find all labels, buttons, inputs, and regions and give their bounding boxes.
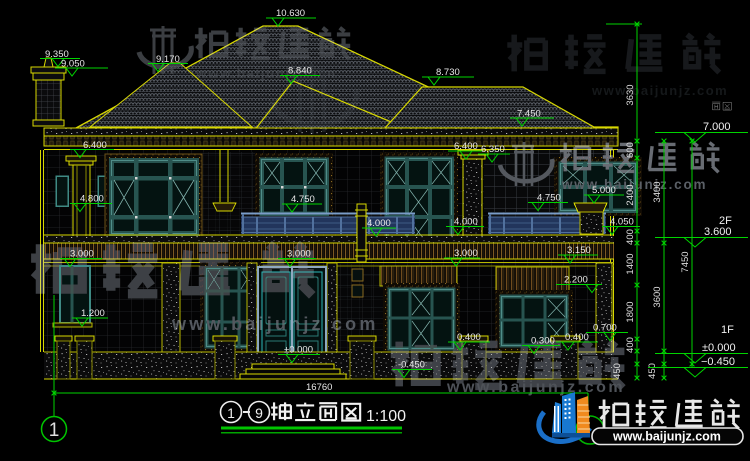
svg-text:4.800: 4.800 — [80, 194, 104, 205]
svg-text:3600: 3600 — [652, 286, 663, 307]
svg-text:-0.450: -0.450 — [398, 360, 425, 371]
svg-text:8.730: 8.730 — [436, 67, 460, 78]
svg-text:1400: 1400 — [625, 253, 636, 274]
svg-text:2400: 2400 — [625, 184, 636, 205]
svg-text:450: 450 — [647, 363, 658, 379]
svg-text:8.840: 8.840 — [288, 66, 312, 77]
svg-text:1F: 1F — [721, 324, 734, 336]
svg-text:3.000: 3.000 — [454, 248, 478, 259]
svg-text:±0.000: ±0.000 — [702, 342, 736, 354]
svg-text:4.750: 4.750 — [291, 194, 315, 205]
svg-text:0.700: 0.700 — [593, 323, 617, 334]
svg-text:www.baijunjz.com: www.baijunjz.com — [612, 430, 721, 444]
svg-text:3.600: 3.600 — [704, 226, 732, 238]
svg-text:4.000: 4.000 — [367, 218, 391, 229]
svg-text:5.000: 5.000 — [592, 185, 616, 196]
svg-text:16760: 16760 — [306, 382, 332, 393]
svg-text:4.000: 4.000 — [454, 217, 478, 228]
svg-text:1.200: 1.200 — [81, 308, 105, 319]
svg-text:2.200: 2.200 — [564, 275, 588, 286]
svg-text:1: 1 — [227, 405, 235, 421]
svg-text:400: 400 — [625, 229, 636, 245]
svg-text:0.400: 0.400 — [565, 332, 589, 343]
svg-text:www.baijunjz.com: www.baijunjz.com — [171, 314, 379, 334]
svg-text:10.630: 10.630 — [276, 8, 305, 19]
svg-text:3.000: 3.000 — [287, 249, 311, 260]
svg-text:1:100: 1:100 — [366, 408, 406, 425]
svg-text:1800: 1800 — [625, 301, 636, 322]
svg-text:www.baijunjz.com: www.baijunjz.com — [591, 83, 728, 98]
svg-text:400: 400 — [625, 337, 636, 353]
svg-text:1: 1 — [49, 420, 60, 441]
svg-text:450: 450 — [612, 363, 623, 379]
svg-text:0.400: 0.400 — [457, 332, 481, 343]
svg-text:0.300: 0.300 — [531, 336, 555, 347]
svg-text:3.150: 3.150 — [567, 245, 591, 256]
svg-text:−0.450: −0.450 — [701, 356, 735, 368]
svg-text:4.050: 4.050 — [610, 217, 634, 228]
svg-text:3630: 3630 — [625, 84, 636, 105]
svg-text:7.000: 7.000 — [703, 121, 731, 133]
svg-text:600: 600 — [625, 142, 636, 158]
svg-text:9: 9 — [255, 405, 263, 421]
svg-text:6.350: 6.350 — [481, 144, 505, 155]
svg-text:6.400: 6.400 — [454, 141, 478, 152]
svg-text:3.000: 3.000 — [70, 249, 94, 260]
svg-text:±0.000: ±0.000 — [284, 345, 313, 356]
svg-text:7450: 7450 — [680, 251, 691, 272]
svg-text:4.750: 4.750 — [537, 193, 561, 204]
svg-text:3400: 3400 — [652, 181, 663, 202]
